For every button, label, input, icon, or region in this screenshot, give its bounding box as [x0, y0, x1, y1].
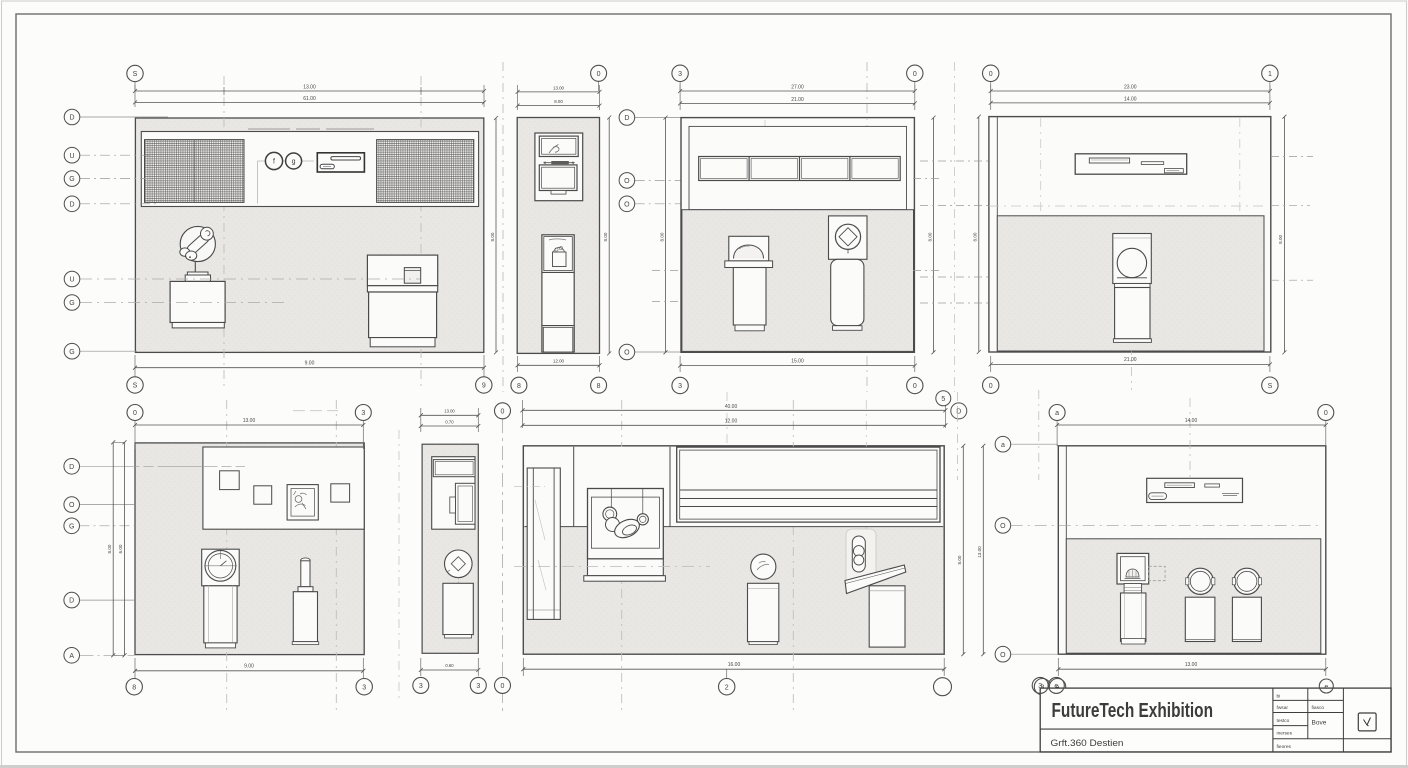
svg-text:8.00: 8.00 [1278, 234, 1283, 243]
svg-text:O: O [624, 201, 630, 208]
svg-text:fieores: fieores [1277, 744, 1292, 750]
svg-text:21.00: 21.00 [791, 97, 804, 103]
svg-text:a: a [1055, 410, 1059, 417]
svg-text:f: f [273, 159, 275, 166]
svg-text:inerses: inerses [1277, 731, 1293, 737]
svg-text:O: O [624, 178, 630, 185]
svg-text:3: 3 [361, 410, 365, 417]
svg-text:0: 0 [1324, 410, 1328, 417]
svg-text:fiasco: fiasco [1312, 705, 1325, 711]
svg-text:D: D [69, 598, 74, 605]
svg-text:16.00: 16.00 [728, 662, 741, 668]
svg-text:S: S [133, 71, 138, 78]
svg-text:g: g [292, 159, 296, 166]
svg-text:13.00: 13.00 [553, 85, 565, 90]
svg-text:D: D [624, 115, 629, 122]
svg-text:G: G [69, 300, 74, 307]
svg-text:D: D [69, 464, 74, 471]
svg-text:0: 0 [989, 71, 993, 78]
svg-text:21.00: 21.00 [1124, 357, 1137, 363]
svg-text:0.60: 0.60 [445, 663, 454, 668]
svg-text:D: D [69, 201, 74, 208]
svg-text:Grft.360 Destien: Grft.360 Destien [1051, 738, 1124, 749]
svg-text:3: 3 [678, 383, 682, 390]
svg-text:27.00: 27.00 [791, 85, 804, 91]
svg-text:8.00: 8.00 [957, 555, 962, 564]
svg-text:9: 9 [482, 383, 486, 390]
svg-text:13.00: 13.00 [1185, 662, 1198, 668]
svg-text:0: 0 [597, 71, 601, 78]
svg-text:fwsar: fwsar [1277, 705, 1289, 711]
svg-text:0: 0 [501, 683, 505, 690]
svg-text:FutureTech Exhibition: FutureTech Exhibition [1052, 700, 1214, 722]
svg-text:bi: bi [1277, 693, 1281, 699]
svg-text:O: O [69, 502, 75, 509]
svg-text:0.70: 0.70 [445, 419, 454, 424]
svg-text:3: 3 [362, 684, 366, 691]
svg-text:8.00: 8.00 [107, 544, 112, 553]
svg-text:8.00: 8.00 [554, 99, 563, 104]
svg-text:D: D [69, 115, 74, 122]
svg-text:8: 8 [597, 383, 601, 390]
svg-text:3: 3 [1038, 683, 1042, 690]
svg-text:U: U [69, 277, 74, 284]
svg-text:13.00: 13.00 [303, 85, 316, 91]
svg-text:8.00: 8.00 [927, 232, 932, 241]
svg-text:9.00: 9.00 [305, 361, 315, 367]
svg-text:O: O [624, 350, 630, 357]
svg-text:G: G [69, 176, 74, 183]
svg-text:0: 0 [989, 383, 993, 390]
svg-text:2: 2 [725, 684, 729, 691]
svg-text:14.00: 14.00 [1185, 418, 1198, 424]
svg-text:6.00: 6.00 [118, 544, 123, 553]
svg-text:1: 1 [1268, 71, 1272, 78]
svg-text:G: G [69, 523, 74, 530]
svg-text:9.00: 9.00 [244, 664, 254, 670]
svg-text:3: 3 [476, 683, 480, 690]
svg-text:0: 0 [913, 383, 917, 390]
svg-text:8: 8 [132, 684, 136, 691]
svg-text:e: e [1324, 684, 1328, 691]
svg-text:13.00: 13.00 [243, 418, 256, 424]
svg-text:G: G [69, 349, 74, 356]
svg-text:14.00: 14.00 [1124, 96, 1137, 102]
svg-text:12.00: 12.00 [553, 358, 565, 363]
svg-text:8.00: 8.00 [973, 232, 978, 241]
svg-text:0: 0 [913, 71, 917, 78]
svg-text:8.00: 8.00 [490, 232, 495, 241]
svg-text:O: O [1000, 523, 1006, 530]
svg-text:0: 0 [501, 409, 505, 416]
svg-text:8.00: 8.00 [659, 232, 664, 241]
svg-text:a: a [1001, 442, 1005, 449]
svg-text:3: 3 [678, 71, 682, 78]
svg-text:e: e [1054, 683, 1058, 690]
svg-text:S: S [1268, 383, 1273, 390]
svg-text:13.00: 13.00 [444, 409, 455, 414]
svg-text:8.00: 8.00 [603, 232, 608, 241]
svg-text:5: 5 [941, 396, 945, 403]
svg-text:U: U [69, 153, 74, 160]
svg-text:13.00: 13.00 [977, 546, 982, 558]
svg-text:Bove: Bove [1312, 720, 1327, 727]
svg-text:61.00: 61.00 [303, 96, 316, 102]
svg-text:A: A [69, 653, 74, 660]
svg-text:0: 0 [133, 410, 137, 417]
svg-text:3: 3 [419, 683, 423, 690]
svg-text:23.00: 23.00 [1124, 85, 1137, 91]
svg-text:S: S [133, 383, 138, 390]
svg-text:15.00: 15.00 [791, 358, 804, 364]
svg-text:testco: testco [1277, 718, 1290, 724]
svg-text:8: 8 [517, 383, 521, 390]
svg-text:O: O [1000, 652, 1006, 659]
